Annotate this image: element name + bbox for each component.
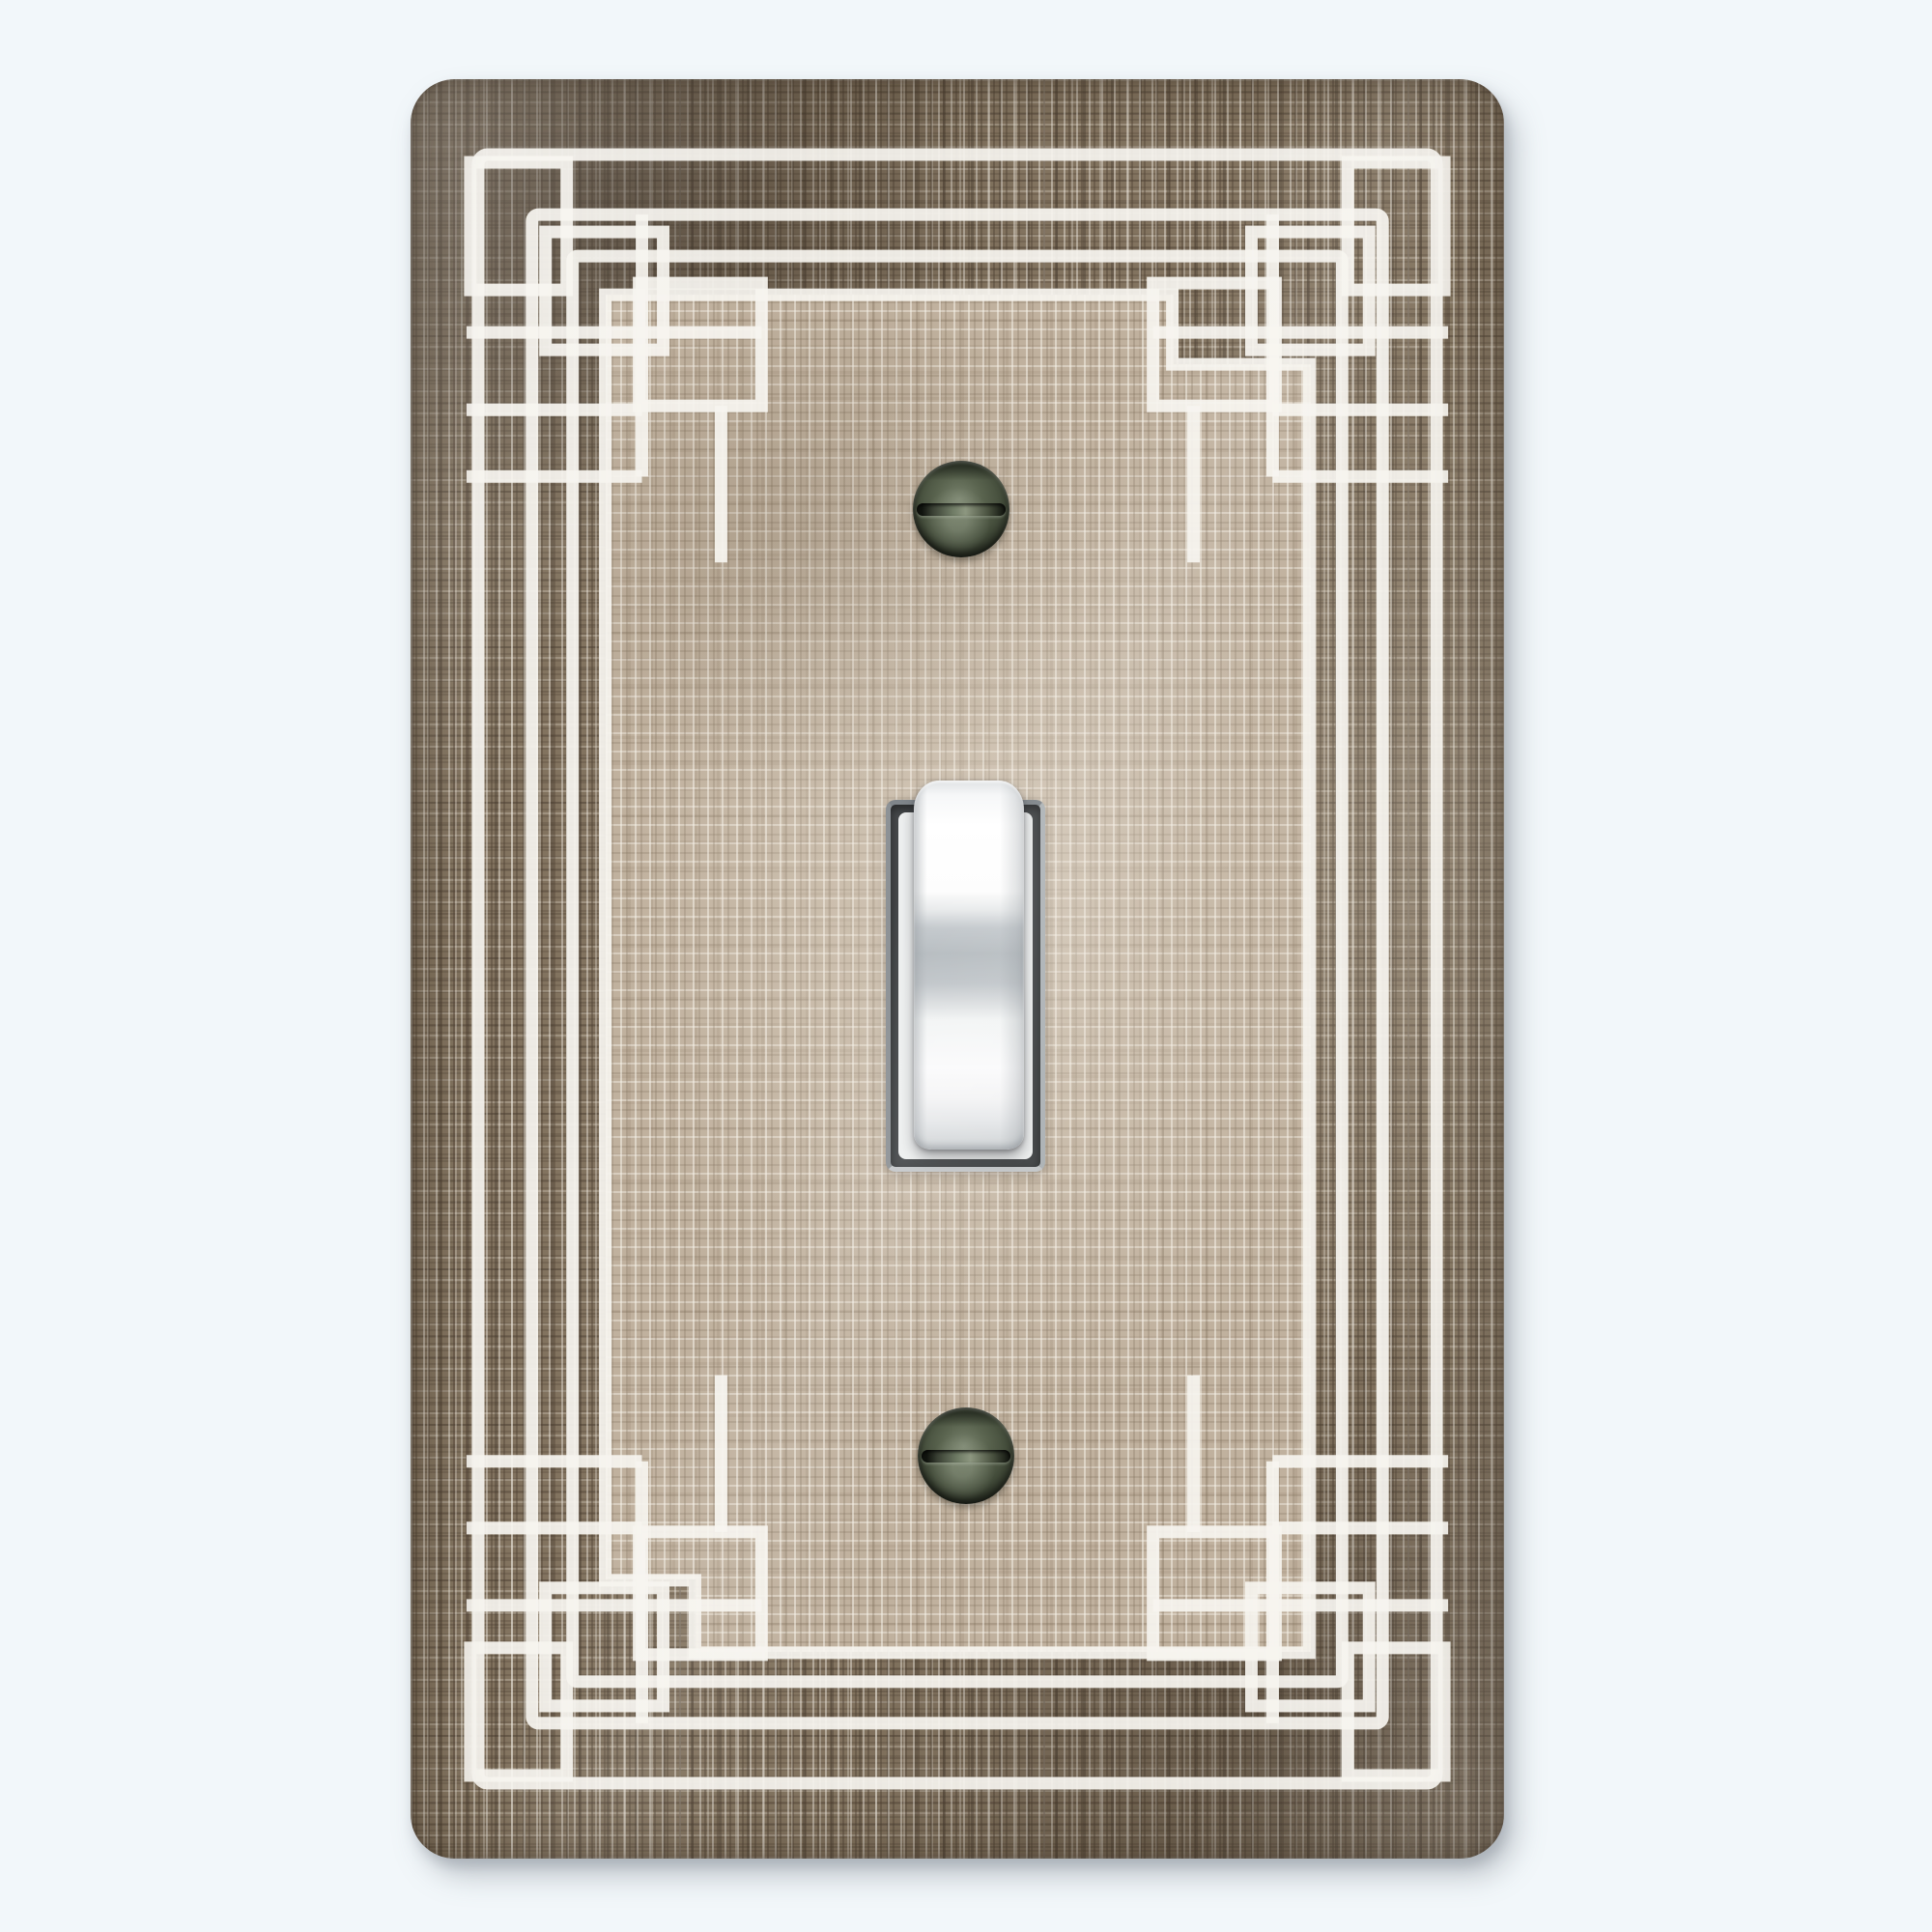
toggle-switch-lever [914, 781, 1024, 1150]
bottom-screw-slot [922, 1450, 1010, 1463]
wall-plate [411, 79, 1504, 1859]
top-mounting-screw [913, 461, 1009, 557]
top-screw-slot [917, 503, 1006, 516]
corner-motif-top-left [467, 162, 761, 562]
bottom-mounting-screw [918, 1407, 1014, 1504]
product-photo-canvas [0, 0, 1932, 1932]
corner-motif-bottom-right [1153, 1376, 1448, 1776]
